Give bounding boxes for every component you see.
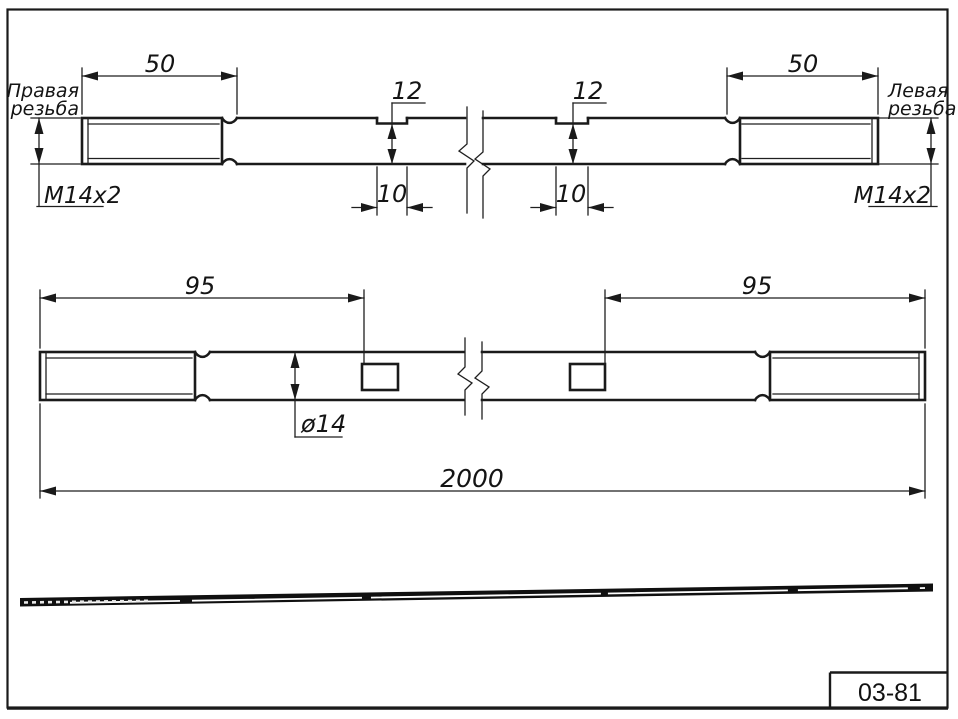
thread-minor-lines [773,358,919,394]
dim-arrow [388,149,397,164]
dim-text-10-left: 10 [377,180,408,208]
drawing-sheet: 50 50 Правая резьба Левая резьба M14x2 [0,0,958,719]
dim-flat-width-right: 10 [531,167,613,215]
note-left-hand-thread: Левая резьба [887,80,956,120]
note-right-hand-thread: Правая резьба [7,80,79,120]
thread-minor-lines [46,358,192,394]
thread-runout-neck [725,118,740,164]
dim-text-95-right: 95 [742,272,773,300]
thread-section-right [725,118,878,164]
thread-runout-neck [222,118,237,164]
thread-section-left [40,352,210,400]
thread-section-left [82,118,237,164]
shaft-outline-front-view [210,338,755,419]
thread-outline [40,352,195,400]
dim-arrow [727,72,743,81]
edge-extension-lines [878,118,938,164]
dim-text-50-left: 50 [145,50,176,78]
top-view: 50 50 Правая резьба Левая резьба M14x2 [7,50,957,218]
dim-text-50-right: 50 [788,50,819,78]
dim-arrow [82,72,98,81]
front-view: 95 95 ø14 2000 [40,272,925,498]
dim-arrow [40,487,56,496]
dim-text-10-right: 10 [556,180,587,208]
thread-section-right [755,352,925,400]
flat-notch-right [556,118,588,124]
thread-minor-lines [88,124,219,159]
dim-arrow [388,124,397,139]
right-hand-thread-label-line2: резьба [10,98,79,120]
part-photo [20,584,933,607]
thread-spec-left-text: M14x2 [44,183,121,209]
dim-arrow [909,487,925,496]
title-block: 03-81 [830,673,948,708]
dim-arrow [569,149,578,164]
thread-runout-neck [195,352,210,400]
dim-arrow [927,148,936,164]
dim-arrow [569,124,578,139]
dim-thread-length-right: 50 [727,50,878,114]
thread-minor-lines [742,124,870,159]
wrench-flat-left [362,364,398,390]
wrench-flat-right [570,364,605,390]
dim-arrow [909,294,925,303]
break-line-left [459,107,474,213]
sheet-code: 03-81 [858,679,922,707]
shaft-edges-right [482,352,755,400]
dim-thread-length-left: 50 [82,50,237,114]
dim-arrow [361,203,377,212]
engineering-drawing: 50 50 Правая резьба Левая резьба M14x2 [0,0,958,719]
dim-text-2000: 2000 [440,464,504,493]
left-hand-thread-label-line2: резьба [887,98,956,120]
dim-text-95-left: 95 [185,272,216,300]
dim-flat-position-left: 95 [40,272,364,363]
callout-diameter: ø14 [291,352,347,438]
thread-runout-neck [755,352,770,400]
dim-flat-position-right: 95 [605,272,925,363]
dim-arrow [35,148,44,164]
thread-spec-right-text: M14x2 [854,183,931,209]
thread-outline [82,118,222,164]
dim-flat-width-left: 10 [352,167,432,215]
shaft-edges-left [210,352,464,400]
dim-text-12-left: 12 [392,77,423,105]
dim-text-diameter: ø14 [300,410,346,438]
dim-arrow [927,118,936,134]
dim-arrow [407,203,423,212]
dim-arrow [35,118,44,134]
break-line-left [458,338,472,415]
dim-arrow [588,203,604,212]
dim-arrow [605,294,621,303]
dim-arrow [291,384,300,400]
dim-arrow [540,203,556,212]
dim-arrow [862,72,878,81]
break-line-right [475,342,489,419]
dim-arrow [291,352,300,368]
thread-outline [740,118,878,164]
shaft-outline-top-view [237,107,725,218]
thread-outline [770,352,925,400]
dim-arrow [348,294,364,303]
dim-arrow [221,72,237,81]
dim-text-12-right: 12 [573,77,604,105]
dim-arrow [40,294,56,303]
